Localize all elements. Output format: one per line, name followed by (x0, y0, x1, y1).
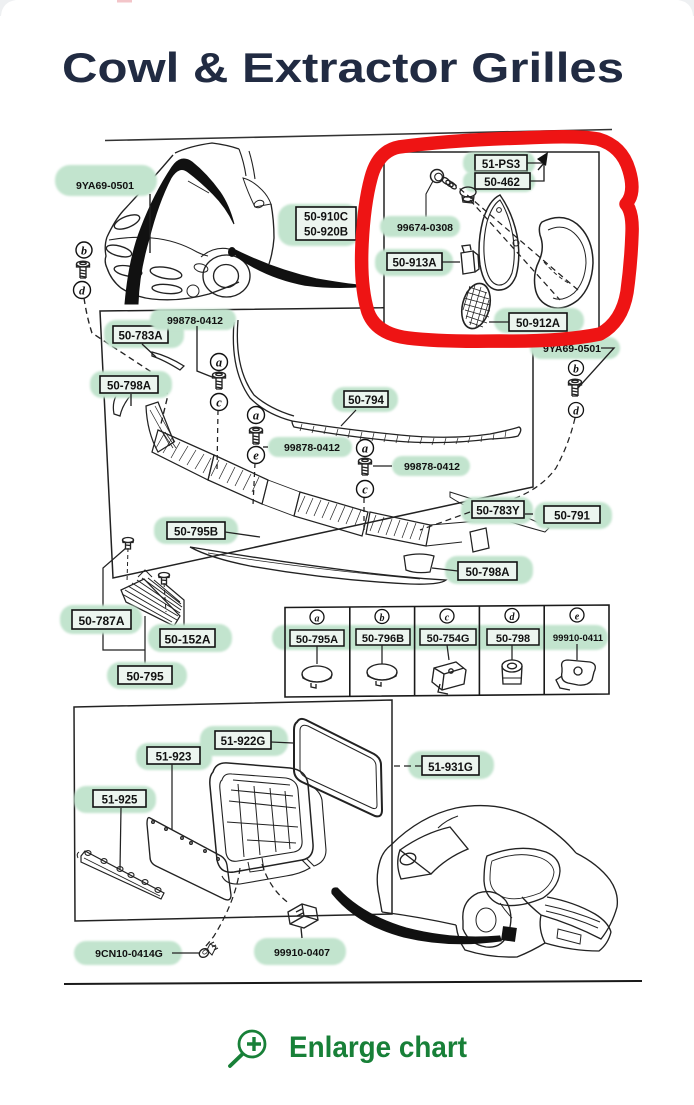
svg-text:51-925: 51-925 (102, 795, 138, 807)
svg-text:c: c (362, 483, 368, 497)
svg-text:50-798A: 50-798A (107, 381, 151, 393)
svg-text:99878-0412: 99878-0412 (167, 315, 223, 327)
svg-text:51-931G: 51-931G (428, 762, 473, 774)
svg-text:a: a (253, 409, 259, 423)
svg-text:99878-0412: 99878-0412 (404, 461, 460, 473)
svg-text:50-794: 50-794 (348, 395, 384, 407)
svg-text:e: e (253, 449, 259, 463)
svg-text:50-754G: 50-754G (427, 633, 470, 645)
svg-text:50-910C: 50-910C (304, 212, 348, 224)
svg-text:d: d (573, 406, 579, 418)
svg-text:50-462: 50-462 (484, 177, 520, 189)
svg-text:b: b (81, 244, 87, 258)
svg-text:50-798A: 50-798A (465, 567, 509, 579)
svg-text:c: c (216, 396, 222, 410)
svg-text:50-783Y: 50-783Y (476, 506, 520, 518)
svg-text:51-922G: 51-922G (221, 736, 266, 748)
svg-text:50-783A: 50-783A (118, 331, 162, 343)
svg-text:a: a (315, 614, 320, 625)
svg-text:b: b (380, 613, 385, 624)
svg-text:51-PS3: 51-PS3 (482, 159, 520, 171)
svg-text:99878-0412: 99878-0412 (284, 442, 340, 454)
svg-text:b: b (573, 364, 579, 376)
svg-text:99910-0407: 99910-0407 (274, 947, 330, 959)
svg-text:50-798: 50-798 (496, 633, 530, 645)
svg-text:50-795A: 50-795A (296, 634, 338, 646)
svg-text:e: e (575, 612, 580, 623)
svg-text:50-787A: 50-787A (78, 614, 124, 628)
svg-text:50-791: 50-791 (554, 511, 590, 523)
svg-text:50-912A: 50-912A (516, 318, 560, 330)
svg-text:50-796B: 50-796B (362, 633, 404, 645)
svg-text:50-152A: 50-152A (164, 633, 210, 647)
svg-text:99674-0308: 99674-0308 (397, 222, 453, 234)
svg-text:a: a (362, 442, 368, 456)
svg-text:Enlarge chart: Enlarge chart (289, 1031, 467, 1064)
svg-text:50-795: 50-795 (126, 670, 164, 684)
svg-text:50-913A: 50-913A (392, 258, 436, 270)
svg-text:c: c (445, 613, 450, 624)
svg-text:51-923: 51-923 (156, 752, 192, 764)
svg-text:9CN10-0414G: 9CN10-0414G (95, 948, 163, 960)
svg-text:9YA69-0501: 9YA69-0501 (76, 180, 134, 192)
svg-text:a: a (216, 356, 222, 370)
svg-text:50-920B: 50-920B (304, 227, 348, 239)
svg-text:99910-0411: 99910-0411 (553, 633, 604, 644)
svg-text:d: d (79, 284, 86, 298)
svg-text:50-795B: 50-795B (174, 527, 218, 539)
svg-text:Cowl & Extractor Grilles: Cowl & Extractor Grilles (62, 44, 624, 91)
